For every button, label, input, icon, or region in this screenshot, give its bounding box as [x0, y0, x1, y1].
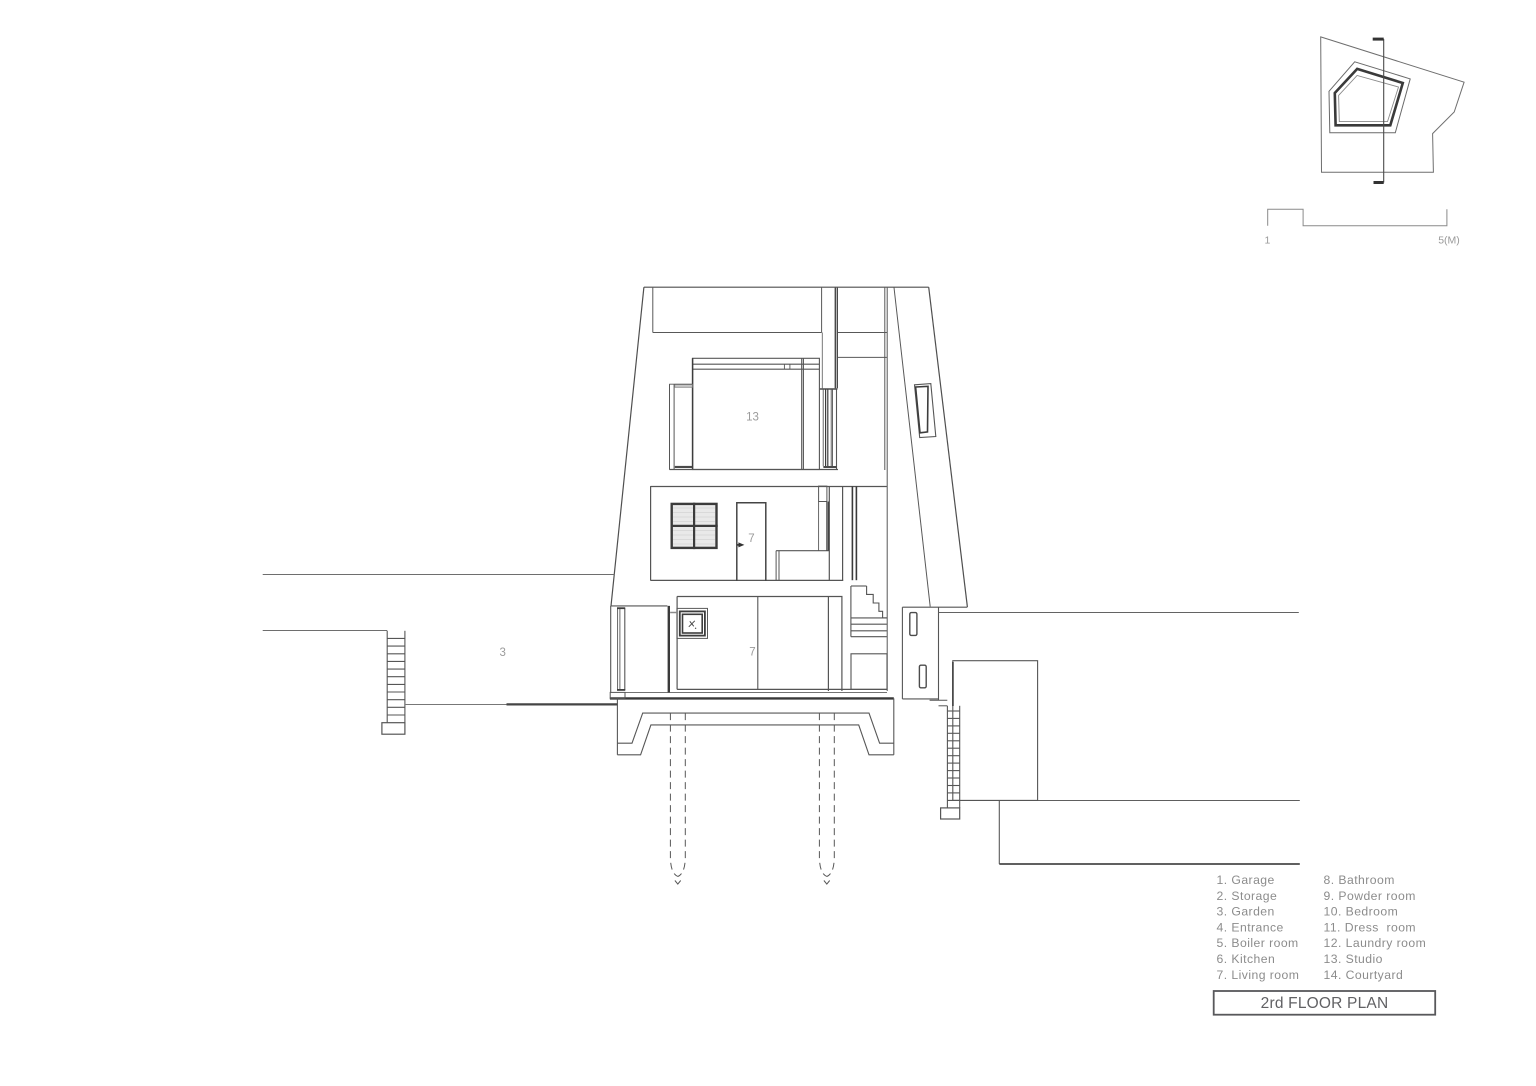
svg-text:14. Courtyard: 14. Courtyard [1324, 968, 1404, 982]
svg-text:13: 13 [746, 411, 759, 423]
svg-text:8. Bathroom: 8. Bathroom [1324, 873, 1395, 887]
svg-text:9. Powder room: 9. Powder room [1324, 889, 1416, 903]
svg-text:1: 1 [1265, 235, 1271, 247]
svg-text:7. Living room: 7. Living room [1217, 968, 1300, 982]
svg-text:7: 7 [748, 533, 754, 545]
svg-text:5(M): 5(M) [1438, 235, 1460, 247]
svg-text:3. Garden: 3. Garden [1217, 905, 1275, 919]
svg-text:6. Kitchen: 6. Kitchen [1217, 952, 1276, 966]
svg-text:1. Garage: 1. Garage [1217, 873, 1275, 887]
svg-text:2. Storage: 2. Storage [1217, 889, 1278, 903]
svg-text:2rd FLOOR PLAN: 2rd FLOOR PLAN [1261, 995, 1389, 1012]
svg-text:3: 3 [499, 647, 505, 659]
svg-text:12. Laundry room: 12. Laundry room [1324, 936, 1427, 950]
svg-text:10. Bedroom: 10. Bedroom [1324, 905, 1399, 919]
svg-text:11. Dress room: 11. Dress room [1324, 920, 1417, 934]
svg-text:4. Entrance: 4. Entrance [1217, 920, 1284, 934]
svg-text:13. Studio: 13. Studio [1324, 952, 1383, 966]
svg-text:5. Boiler room: 5. Boiler room [1217, 936, 1299, 950]
svg-text:7: 7 [749, 646, 755, 658]
